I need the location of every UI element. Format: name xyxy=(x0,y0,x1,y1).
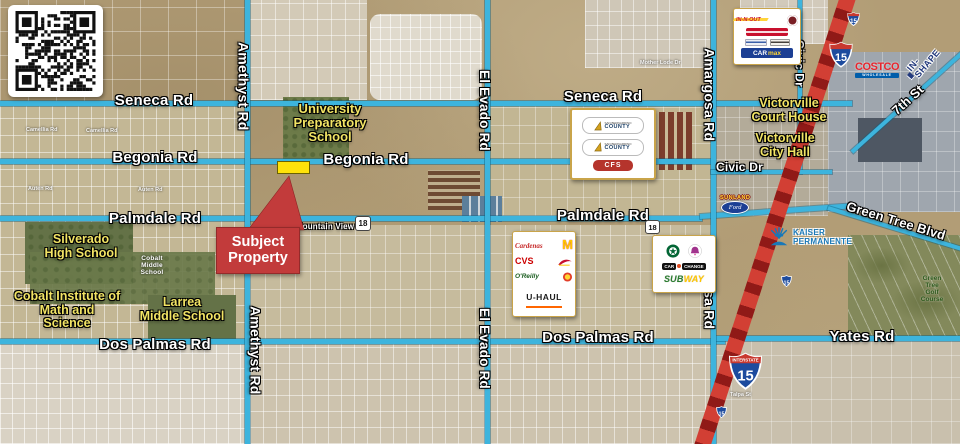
map-canvas: Subject Property Seneca Rd Seneca Rd Beg… xyxy=(0,0,960,444)
county-bottom-text: COUNTY xyxy=(604,125,631,131)
road-label-el-evado-n: El Evado Rd xyxy=(477,70,491,151)
residential-area xyxy=(0,340,470,444)
road-label-amargosa-n: Amargosa Rd xyxy=(702,48,717,141)
road-label-palmdale-e: Palmdale Rd xyxy=(557,208,649,224)
carmax-logo: CAR max xyxy=(741,48,793,58)
road-label-mountain-view: Mountain View xyxy=(296,223,354,231)
svg-text:INTERSTATE: INTERSTATE xyxy=(732,358,758,363)
road-label-amethyst-s: Amethyst Rd xyxy=(248,306,263,395)
sunland-ford-logo: SUNLAND Ford xyxy=(720,195,750,214)
subject-property-label: Subject Property xyxy=(228,235,288,267)
svg-text:15: 15 xyxy=(737,369,753,385)
pizza-hut-logo xyxy=(557,256,573,266)
round-seal-logo xyxy=(787,15,798,26)
costco-wholesale-bar: WHOLESALE xyxy=(855,73,899,78)
subway-way: WAY xyxy=(684,274,704,284)
place-label-larrea: Larrea Middle School xyxy=(140,296,225,323)
costco-logo: COSTCO WHOLESALE xyxy=(855,62,899,78)
svg-text:15: 15 xyxy=(850,18,858,25)
mcdonalds-logo: M xyxy=(562,240,573,250)
street-label-mother-lode: Mother Lode Dr xyxy=(640,60,681,66)
subject-parcel xyxy=(277,161,310,174)
county-logo: SAN BERNARDINO COUNTY xyxy=(582,117,644,134)
i15-shield: 15 xyxy=(829,41,853,68)
small-logo-chip xyxy=(745,39,767,46)
red-banner-logo xyxy=(746,28,788,36)
logo-box-auto-retail: IN-N-OUT CAR max xyxy=(733,8,801,65)
i15-shield-small: 15 xyxy=(716,406,727,418)
kaiser-text: KAISER PERMANENTE xyxy=(793,228,852,246)
road-label-el-evado-s: El Evado Rd xyxy=(477,308,491,389)
uhaul-logo: U-HAUL xyxy=(526,287,562,308)
street-label-camellia: Camellia Rd xyxy=(86,128,117,134)
residential-area xyxy=(247,0,367,100)
carmax-max: max xyxy=(768,50,781,57)
place-label-cobalt-institute: Cobalt Institute of Math and Science xyxy=(14,290,120,331)
county-arrowhead-icon xyxy=(594,142,602,152)
road-label-amethyst-n: Amethyst Rd xyxy=(236,42,251,131)
place-label-golf-course: Green Tree Golf Course xyxy=(918,275,946,304)
pizza-slice-logo xyxy=(562,272,573,282)
ford-oval-logo: Ford xyxy=(721,201,749,214)
taco-bell-logo xyxy=(688,244,702,258)
road-label-yates: Yates Rd xyxy=(830,329,895,345)
road-label-begonia-e: Begonia Rd xyxy=(323,152,408,168)
place-label-court-house: Victorville Court House xyxy=(752,97,827,124)
car-change-dot xyxy=(677,264,681,268)
car-change-text-2: CHANGE xyxy=(682,263,706,270)
svg-text:15: 15 xyxy=(835,52,847,64)
road-label-begonia-w: Begonia Rd xyxy=(112,150,197,166)
road-label-seneca-e: Seneca Rd xyxy=(564,89,643,105)
oreilly-logo: O'Reilly xyxy=(515,273,539,280)
small-logo-chip xyxy=(770,39,790,46)
costco-text: COSTCO xyxy=(855,62,899,73)
road-label-seventh-st: 7th St xyxy=(890,82,927,117)
county-logo: SAN BERNARDINO COUNTY xyxy=(582,139,644,156)
starbucks-logo xyxy=(666,244,680,258)
costco-wholesale-text: WHOLESALE xyxy=(862,74,892,78)
car-change-logo: CAR CHANGE xyxy=(662,263,705,270)
place-label-university-prep: University Preparatory School xyxy=(294,102,367,144)
subway-logo: SUBWAY xyxy=(664,274,704,284)
place-label-city-hall: Victorville City Hall xyxy=(755,132,815,159)
sr18-number: 18 xyxy=(648,223,656,232)
county-arrowhead-icon xyxy=(594,121,602,131)
road-label-palmdale-w: Palmdale Rd xyxy=(109,211,201,227)
street-label-auten: Auten Rd xyxy=(138,187,162,193)
cfs-logo: CFS xyxy=(593,160,633,171)
road-label-civic-dr-e: Civic Dr xyxy=(716,161,763,174)
cardenas-logo: Cardenas xyxy=(515,242,543,250)
road-label-seneca-w: Seneca Rd xyxy=(115,93,194,109)
street-label-talpa: Talpa St xyxy=(730,392,751,398)
place-label-cobalt-middle: Cobalt Middle School xyxy=(141,256,164,276)
county-bottom-text: COUNTY xyxy=(604,146,631,152)
housing-tract xyxy=(370,14,482,100)
logo-box-county: SAN BERNARDINO COUNTY SAN BERNARDINO COU… xyxy=(570,108,656,180)
kaiser-logo: KAISER PERMANENTE xyxy=(768,226,852,248)
road-label-dos-palmas-e: Dos Palmas Rd xyxy=(542,330,654,346)
car-change-text-1: CAR xyxy=(662,263,676,270)
carmax-car: CAR xyxy=(753,50,767,57)
logo-box-retail-east: CAR CHANGE SUBWAY xyxy=(652,235,716,293)
subway-sub: SUB xyxy=(664,274,684,284)
qr-code xyxy=(8,5,103,97)
svg-text:15: 15 xyxy=(718,411,724,417)
street-label-auten: Auten Rd xyxy=(28,186,52,192)
logo-box-retail-west: Cardenas M CVS O'Reilly U-HAUL xyxy=(512,231,576,317)
kaiser-icon xyxy=(768,226,790,248)
uhaul-text: U-HAUL xyxy=(526,292,562,302)
apartment-roofs xyxy=(428,170,480,210)
place-label-silverado: Silverado High School xyxy=(45,233,118,260)
i15-shield-small: 15 xyxy=(847,12,860,26)
road-label-dos-palmas-w: Dos Palmas Rd xyxy=(99,337,211,353)
i15-shield-small: 15 xyxy=(781,275,792,287)
street-label-camellia: Camellia Rd xyxy=(26,127,57,133)
cfs-text: CFS xyxy=(605,162,622,169)
cvs-logo: CVS xyxy=(515,256,534,266)
i15-shield: INTERSTATE 15 xyxy=(728,352,763,390)
in-n-out-logo: IN-N-OUT xyxy=(736,17,761,23)
sr18-number: 18 xyxy=(359,219,368,228)
sr18-shield: 18 xyxy=(355,216,371,231)
road-label-green-tree: Green Tree Blvd xyxy=(845,199,947,242)
sr18-shield: 18 xyxy=(645,220,660,234)
subject-property-callout: Subject Property xyxy=(216,227,300,274)
svg-text:15: 15 xyxy=(783,280,789,286)
housing-tract xyxy=(585,0,710,68)
ford-text: Ford xyxy=(729,204,742,211)
